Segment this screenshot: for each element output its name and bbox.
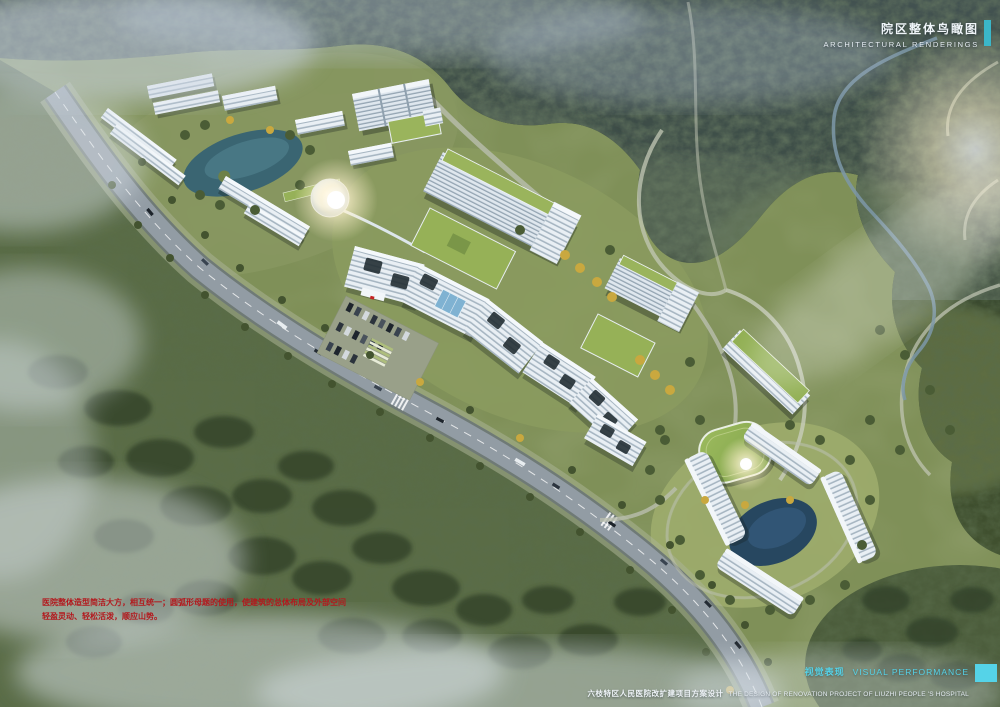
project-title-en: THE DESIGN OF RENOVATION PROJECT OF LIUZ… [729,691,970,698]
page-subtitle: ARCHITECTURAL RENDERINGS [823,40,979,49]
rendering-board: 院区整体鸟瞰图 ARCHITECTURAL RENDERINGS 医院整体造型简… [0,0,1000,707]
footer-block: 视觉表现VISUAL PERFORMANCE 六枝特区人民医院改扩建项目方案设计… [588,662,998,701]
project-title-cn: 六枝特区人民医院改扩建项目方案设计 [588,689,724,698]
title-block: 院区整体鸟瞰图 ARCHITECTURAL RENDERINGS [823,20,991,49]
design-annotation: 医院整体造型简洁大方，相互统一；圆弧形母题的使用，使建筑的总体布局及外部空间 轻… [42,596,346,624]
section-title-en: VISUAL PERFORMANCE [853,667,969,677]
section-title-cn: 视觉表现 [805,667,845,677]
annotation-line-1: 医院整体造型简洁大方，相互统一；圆弧形母题的使用，使建筑的总体布局及外部空间 [42,596,346,610]
title-accent-bar [984,20,991,46]
page-title: 院区整体鸟瞰图 [823,20,979,37]
annotation-line-2: 轻盈灵动、轻松活泼，顺应山势。 [42,610,346,624]
footer-accent-square [975,664,997,682]
